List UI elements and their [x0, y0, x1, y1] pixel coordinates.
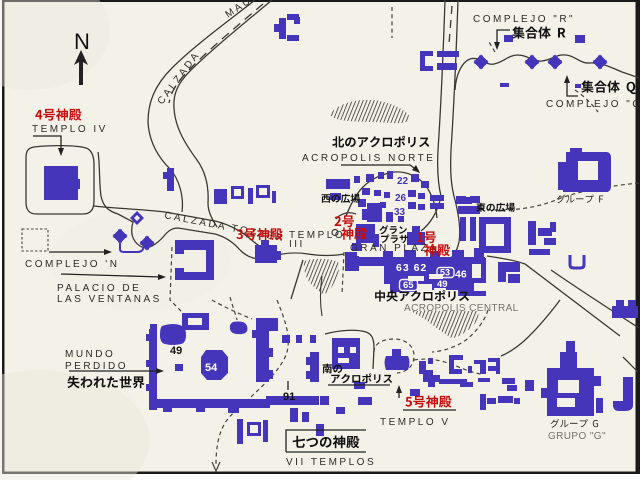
svg-text:VII TEMPLOS: VII TEMPLOS [286, 457, 376, 468]
svg-text:COMPLEJO "R": COMPLEJO "R" [473, 14, 575, 25]
svg-text:MUNDO: MUNDO [65, 349, 115, 360]
svg-text:49: 49 [170, 345, 182, 357]
svg-text:COMPLEJO "Q: COMPLEJO "Q [546, 99, 640, 110]
svg-text:III: III [289, 239, 305, 250]
svg-text:TEMPLO V: TEMPLO V [380, 417, 451, 428]
svg-text:LAS VENTANAS: LAS VENTANAS [57, 294, 162, 305]
svg-text:26: 26 [395, 193, 407, 204]
svg-text:N: N [74, 29, 90, 54]
svg-text:63 62: 63 62 [396, 262, 427, 274]
svg-text:65: 65 [403, 280, 414, 291]
svg-text:ACROPOLIS NORTE: ACROPOLIS NORTE [302, 153, 435, 164]
svg-text:49: 49 [437, 279, 448, 290]
svg-text:91: 91 [283, 391, 295, 403]
svg-text:PALACIO DE: PALACIO DE [57, 283, 141, 294]
svg-text:COMPLEJO 'N: COMPLEJO 'N [25, 259, 119, 270]
svg-text:22: 22 [397, 176, 409, 187]
svg-text:54: 54 [205, 362, 218, 374]
svg-text:PERDIDO: PERDIDO [65, 361, 128, 372]
svg-text:33: 33 [394, 207, 406, 218]
svg-text:GRUPO "G": GRUPO "G" [548, 431, 606, 442]
svg-text:53: 53 [440, 268, 450, 278]
svg-text:TEMPLO IV: TEMPLO IV [32, 124, 108, 135]
svg-text:ACROPOLIS CENTRAL: ACROPOLIS CENTRAL [404, 303, 519, 314]
svg-text:46: 46 [455, 269, 467, 281]
